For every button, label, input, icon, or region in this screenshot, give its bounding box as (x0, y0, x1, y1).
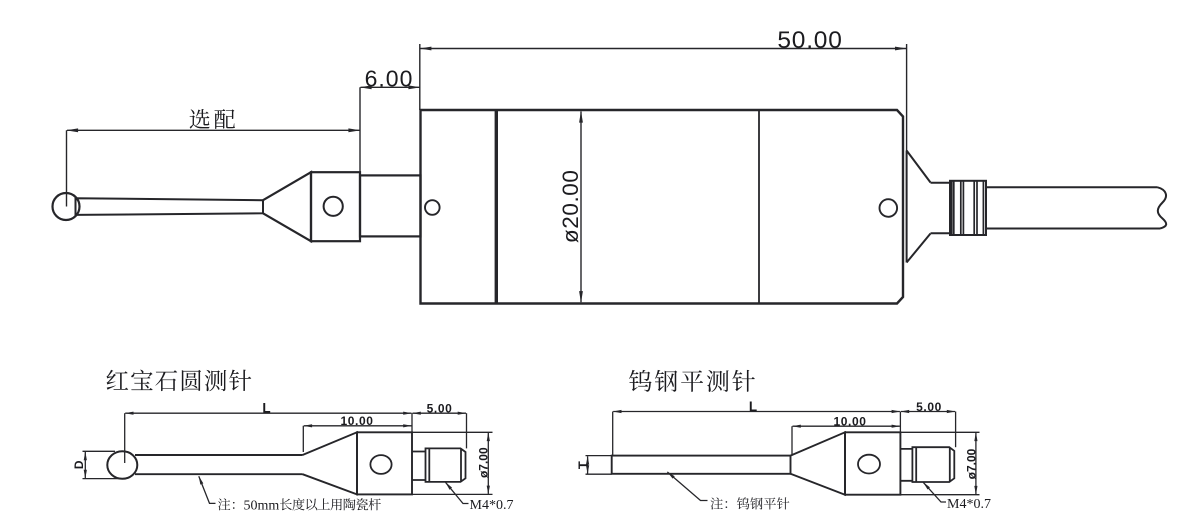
svg-text:M4*0.7: M4*0.7 (947, 497, 991, 512)
svg-text:D: D (72, 460, 86, 469)
svg-text:L: L (749, 399, 757, 414)
svg-text:5.00: 5.00 (916, 400, 942, 414)
svg-text:50mm: 50mm (244, 498, 280, 513)
svg-text:5.00: 5.00 (427, 401, 453, 415)
svg-text:ø7.00: ø7.00 (964, 448, 978, 479)
svg-text:50.00: 50.00 (777, 27, 842, 54)
svg-text:10.00: 10.00 (340, 414, 373, 428)
svg-text:10.00: 10.00 (833, 414, 866, 428)
svg-text:M4*0.7: M4*0.7 (470, 498, 514, 513)
svg-text:6.00: 6.00 (365, 66, 414, 92)
svg-text:T: T (576, 461, 591, 469)
svg-text:ø20.00: ø20.00 (558, 169, 583, 243)
svg-text:ø7.00: ø7.00 (477, 447, 491, 478)
svg-text:L: L (262, 400, 270, 415)
